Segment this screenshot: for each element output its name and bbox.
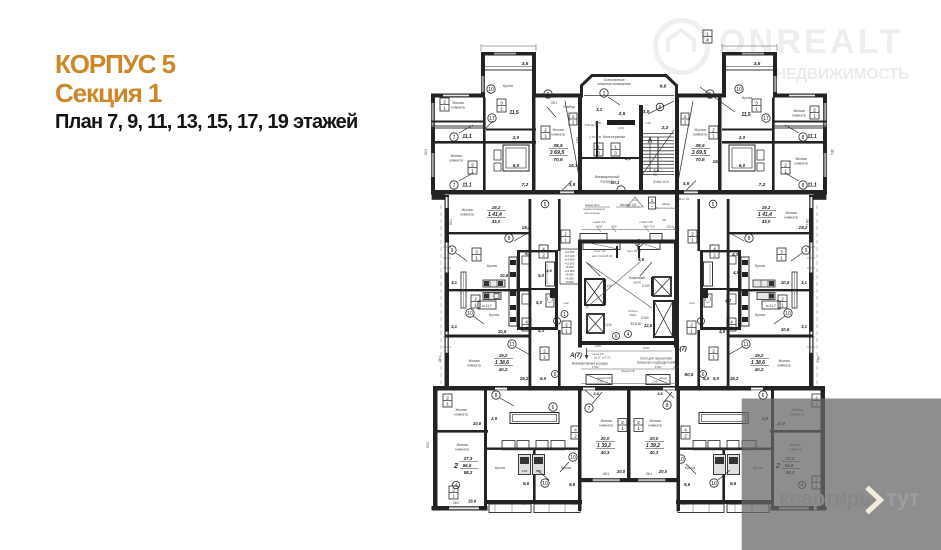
svg-text:Е15,30: Е15,30 bbox=[631, 322, 642, 326]
svg-text:4: 4 bbox=[730, 319, 733, 324]
svg-text:комната: комната bbox=[599, 424, 613, 428]
svg-text:9,6: 9,6 bbox=[660, 84, 667, 90]
svg-text:люк: люк bbox=[689, 301, 695, 305]
svg-text:600 710: 600 710 bbox=[644, 225, 655, 229]
svg-text:5,0: 5,0 bbox=[540, 376, 547, 381]
svg-text:Жилая: Жилая bbox=[600, 419, 611, 423]
svg-text:1: 1 bbox=[471, 168, 474, 173]
svg-text:10: 10 bbox=[785, 311, 791, 317]
svg-text:5=8а·10,6: 5=8а·10,6 bbox=[653, 180, 668, 184]
svg-text:мест. ОК: мест. ОК bbox=[594, 249, 606, 253]
svg-text:3: 3 bbox=[780, 249, 783, 254]
svg-text:комната: комната bbox=[454, 413, 468, 417]
svg-text:А(7): А(7) bbox=[569, 353, 582, 359]
svg-text:7,2: 7,2 bbox=[522, 182, 529, 188]
svg-text:2: 2 bbox=[784, 162, 787, 167]
svg-text:=17.000: =17.000 bbox=[565, 254, 575, 258]
svg-text:3,9: 3,9 bbox=[569, 182, 576, 187]
svg-text:1 39,2: 1 39,2 bbox=[646, 443, 660, 449]
svg-text:40,3: 40,3 bbox=[600, 450, 610, 455]
svg-text:2: 2 bbox=[564, 231, 567, 236]
svg-text:2: 2 bbox=[542, 252, 545, 257]
svg-text:Вентиляционный: Вентиляционный bbox=[656, 206, 679, 210]
svg-text:10: 10 bbox=[736, 87, 742, 93]
svg-text:1: 1 bbox=[475, 255, 478, 260]
svg-text:19,2: 19,2 bbox=[492, 205, 501, 210]
svg-text:7: 7 bbox=[588, 406, 591, 412]
svg-text:4: 4 bbox=[455, 483, 458, 489]
svg-text:1 38,6: 1 38,6 bbox=[751, 360, 765, 366]
svg-text:1,00: 1,00 bbox=[645, 121, 651, 125]
svg-text:6,0: 6,0 bbox=[625, 156, 632, 161]
svg-text:38,5: 38,5 bbox=[695, 143, 705, 149]
svg-text:3,1: 3,1 bbox=[451, 324, 457, 329]
svg-text:2: 2 bbox=[453, 463, 458, 470]
svg-text:мест СА Е15,30: мест СА Е15,30 bbox=[592, 254, 613, 258]
svg-text:6: 6 bbox=[638, 241, 641, 247]
svg-text:675: 675 bbox=[673, 365, 678, 369]
svg-text:1 38,6: 1 38,6 bbox=[495, 360, 509, 366]
svg-text:12,5: 12,5 bbox=[644, 323, 653, 328]
svg-text:6,0: 6,0 bbox=[739, 163, 746, 168]
svg-text:17: 17 bbox=[489, 116, 495, 122]
svg-text:2: 2 bbox=[565, 322, 568, 327]
svg-text:1: 1 bbox=[614, 144, 617, 149]
svg-text:11,1: 11,1 bbox=[807, 183, 817, 189]
svg-text:3: 3 bbox=[597, 150, 600, 155]
svg-text:70,6: 70,6 bbox=[695, 157, 705, 163]
svg-text:Жилая: Жилая bbox=[452, 101, 463, 105]
svg-text:2: 2 bbox=[813, 107, 816, 112]
svg-text:Жилая: Жилая bbox=[694, 128, 705, 132]
svg-text:комната: комната bbox=[455, 448, 469, 452]
svg-text:комната: комната bbox=[449, 159, 463, 163]
svg-text:3200: 3200 bbox=[643, 346, 650, 350]
svg-text:3 69,5: 3 69,5 bbox=[692, 150, 707, 156]
svg-text:10: 10 bbox=[542, 481, 548, 487]
svg-text:17: 17 bbox=[763, 116, 769, 122]
svg-text:3: 3 bbox=[475, 249, 478, 254]
svg-text:2: 2 bbox=[544, 127, 547, 132]
svg-text:Жилая: Жилая bbox=[793, 109, 804, 113]
svg-text:3: 3 bbox=[614, 150, 617, 155]
svg-text:комната: комната bbox=[467, 364, 481, 368]
svg-text:9,6: 9,6 bbox=[684, 482, 691, 487]
svg-text:10: 10 bbox=[467, 311, 473, 317]
svg-text:8: 8 bbox=[508, 236, 511, 242]
svg-text:58,2: 58,2 bbox=[464, 470, 473, 475]
svg-text:ОК1: ОК1 bbox=[830, 149, 834, 155]
svg-text:2: 2 bbox=[446, 395, 449, 400]
svg-text:38,5: 38,5 bbox=[553, 143, 563, 149]
svg-text:комната: комната bbox=[792, 114, 806, 118]
svg-text:1: 1 bbox=[597, 144, 600, 149]
svg-text:8: 8 bbox=[495, 393, 498, 399]
svg-text:4: 4 bbox=[574, 427, 577, 432]
svg-text:3,5: 3,5 bbox=[681, 501, 687, 506]
svg-text:10: 10 bbox=[488, 87, 494, 93]
svg-text:при пожаре: при пожаре bbox=[584, 211, 600, 215]
svg-text:70,6: 70,6 bbox=[553, 157, 563, 163]
svg-text:8: 8 bbox=[556, 319, 559, 325]
svg-text:ОК1: ОК1 bbox=[603, 472, 610, 476]
svg-text:1: 1 bbox=[563, 312, 566, 318]
svg-text:2: 2 bbox=[690, 322, 693, 327]
svg-text:4: 4 bbox=[684, 427, 687, 432]
svg-text:11,5: 11,5 bbox=[509, 110, 519, 116]
svg-text:2: 2 bbox=[730, 325, 733, 330]
svg-text:1: 1 bbox=[500, 106, 503, 111]
svg-text:–: – bbox=[651, 203, 654, 208]
svg-text:2: 2 bbox=[525, 325, 528, 330]
svg-text:4: 4 bbox=[542, 246, 545, 251]
svg-text:2: 2 bbox=[543, 348, 546, 353]
svg-text:Внеквартирный коридор: Внеквартирный коридор bbox=[572, 362, 608, 366]
svg-text:комната: комната bbox=[451, 106, 465, 110]
svg-text:11: 11 bbox=[743, 342, 748, 348]
svg-text:6,0: 6,0 bbox=[513, 163, 520, 168]
svg-text:3: 3 bbox=[755, 100, 758, 105]
svg-text:3: 3 bbox=[500, 100, 503, 105]
svg-text:ОК2: ОК2 bbox=[453, 501, 460, 505]
svg-text:Жилая: Жилая bbox=[455, 408, 466, 412]
svg-text:10: 10 bbox=[711, 481, 717, 487]
svg-text:1: 1 bbox=[443, 105, 446, 110]
svg-text:7,2: 7,2 bbox=[759, 182, 766, 188]
svg-text:2,5: 2,5 bbox=[618, 111, 626, 117]
svg-text:спавб ОБ: спавб ОБ bbox=[639, 220, 652, 224]
svg-text:4,0: 4,0 bbox=[724, 298, 731, 303]
svg-text:1: 1 bbox=[781, 302, 784, 307]
svg-text:56,6: 56,6 bbox=[463, 463, 472, 468]
svg-text:5: 5 bbox=[712, 202, 715, 208]
svg-text:4: 4 bbox=[627, 332, 630, 338]
svg-text:Шкафы ОБ: Шкафы ОБ bbox=[620, 203, 637, 207]
svg-text:6: 6 bbox=[702, 372, 705, 378]
svg-text:2: 2 bbox=[781, 296, 784, 301]
svg-text:5: 5 bbox=[544, 202, 547, 208]
svg-text:6: 6 bbox=[552, 405, 555, 411]
svg-text:7: 7 bbox=[453, 135, 456, 141]
svg-text:4: 4 bbox=[713, 246, 716, 251]
svg-text:1: 1 bbox=[572, 114, 575, 119]
svg-text:19,2: 19,2 bbox=[520, 376, 529, 381]
svg-text:комната: комната bbox=[551, 133, 565, 137]
svg-text:19,2: 19,2 bbox=[799, 225, 808, 230]
svg-text:4,3: 4,3 bbox=[731, 252, 738, 257]
svg-text:2: 2 bbox=[713, 252, 716, 257]
svg-text:1: 1 bbox=[712, 354, 715, 359]
svg-text:8: 8 bbox=[700, 319, 703, 325]
svg-text:10,6: 10,6 bbox=[781, 327, 790, 332]
svg-text:600: 600 bbox=[611, 225, 616, 229]
svg-text:6: 6 bbox=[615, 334, 618, 340]
svg-text:Жилая: Жилая bbox=[456, 443, 467, 447]
svg-text:4: 4 bbox=[525, 319, 528, 324]
svg-text:2: 2 bbox=[712, 127, 715, 132]
svg-text:(т-Па)СВ: (т-Па)СВ bbox=[589, 135, 601, 139]
svg-text:43,0: 43,0 bbox=[761, 219, 771, 224]
svg-text:9600: 9600 bbox=[595, 121, 602, 125]
svg-text:=3.000: =3.000 bbox=[565, 276, 574, 280]
svg-text:8: 8 bbox=[666, 403, 669, 409]
svg-text:6: 6 bbox=[762, 393, 765, 399]
svg-text:10: 10 bbox=[678, 457, 684, 463]
svg-text:9,6: 9,6 bbox=[569, 482, 576, 487]
svg-text:6: 6 bbox=[659, 105, 662, 111]
svg-text:тут: тут bbox=[886, 486, 920, 511]
svg-text:=6.000: =6.000 bbox=[565, 273, 574, 277]
svg-text:1: 1 bbox=[780, 255, 783, 260]
svg-text:комната: комната bbox=[784, 216, 798, 220]
svg-text:см.1Г а.П.ГЗ: см.1Г а.П.ГЗ bbox=[594, 356, 611, 360]
svg-text:4,9: 4,9 bbox=[732, 270, 739, 275]
svg-text:16,1: 16,1 bbox=[569, 163, 578, 168]
svg-text:люк: люк bbox=[563, 301, 569, 305]
svg-text:1200: 1200 bbox=[618, 126, 625, 130]
svg-text:спавб 2,5: спавб 2,5 bbox=[592, 220, 605, 224]
svg-text:43,0: 43,0 bbox=[491, 219, 501, 224]
svg-text:11: 11 bbox=[509, 342, 514, 348]
svg-text:6: 6 bbox=[554, 372, 557, 378]
svg-text:3,9: 3,9 bbox=[683, 181, 690, 186]
svg-text:Кухня: Кухня bbox=[503, 84, 513, 88]
svg-text:=0.000: =0.000 bbox=[565, 280, 574, 284]
svg-text:9,6: 9,6 bbox=[730, 481, 737, 486]
svg-text:1: 1 bbox=[706, 31, 709, 36]
svg-text:152,5: 152,5 bbox=[666, 225, 674, 229]
svg-text:ПВ: ПВ bbox=[662, 218, 666, 222]
svg-text:1 39,2: 1 39,2 bbox=[597, 443, 611, 449]
svg-text:м 11,7: м 11,7 bbox=[482, 304, 492, 308]
svg-text:Б(7): Б(7) bbox=[675, 347, 687, 353]
svg-text:3,6: 3,6 bbox=[657, 391, 663, 396]
svg-text:холл: холл bbox=[633, 280, 640, 284]
svg-text:+14.000: +14.000 bbox=[565, 258, 575, 262]
svg-text:1700: 1700 bbox=[592, 365, 599, 369]
svg-text:ОК1: ОК1 bbox=[551, 101, 558, 105]
svg-text:Кухня: Кухня bbox=[755, 313, 765, 317]
svg-text:3,1: 3,1 bbox=[730, 501, 736, 506]
svg-text:2: 2 bbox=[712, 348, 715, 353]
svg-text:2,2: 2,2 bbox=[661, 125, 669, 131]
svg-text:нежилые помещения: нежилые помещения bbox=[597, 82, 630, 86]
svg-text:2430: 2430 bbox=[595, 344, 602, 348]
svg-text:Консьержная: Консьержная bbox=[603, 135, 625, 139]
svg-text:1: 1 bbox=[651, 198, 654, 203]
svg-text:1: 1 bbox=[452, 493, 455, 498]
svg-text:7: 7 bbox=[453, 183, 456, 189]
svg-text:1700: 1700 bbox=[597, 380, 604, 384]
svg-text:3,5: 3,5 bbox=[522, 61, 529, 67]
svg-text:11,5: 11,5 bbox=[741, 112, 751, 118]
svg-text:9: 9 bbox=[805, 248, 808, 254]
svg-text:3,6: 3,6 bbox=[593, 391, 599, 396]
svg-text:Шкаф: Шкаф bbox=[659, 376, 668, 380]
svg-text:ОК1: ОК1 bbox=[438, 356, 442, 362]
svg-text:квартиры: квартиры bbox=[779, 487, 876, 511]
svg-text:м 11,7: м 11,7 bbox=[766, 304, 776, 308]
svg-text:3,1: 3,1 bbox=[451, 280, 457, 285]
svg-text:1: 1 bbox=[637, 426, 640, 431]
svg-text:10,1: 10,1 bbox=[611, 180, 620, 185]
svg-text:19,2: 19,2 bbox=[499, 353, 508, 358]
svg-text:комната: комната bbox=[648, 424, 662, 428]
svg-text:=11.000: =11.000 bbox=[565, 261, 575, 265]
svg-text:40,2: 40,2 bbox=[754, 367, 764, 372]
svg-text:8: 8 bbox=[802, 135, 805, 141]
svg-text:80,5: 80,5 bbox=[685, 372, 694, 377]
svg-text:1: 1 bbox=[564, 237, 567, 242]
svg-text:2: 2 bbox=[637, 420, 640, 425]
svg-text:20,0: 20,0 bbox=[616, 469, 626, 474]
svg-text:Е130: Е130 bbox=[642, 284, 650, 288]
svg-text:11,1: 11,1 bbox=[462, 183, 472, 189]
svg-text:20,0: 20,0 bbox=[658, 469, 668, 474]
svg-text:1: 1 bbox=[813, 113, 816, 118]
svg-text:9: 9 bbox=[451, 248, 454, 254]
svg-text:+14.000: +14.000 bbox=[565, 269, 575, 273]
svg-text:ПК: ПК bbox=[653, 173, 657, 177]
svg-text:Тамбур: Тамбур bbox=[563, 105, 575, 109]
svg-text:3,1: 3,1 bbox=[596, 107, 603, 112]
svg-text:10,6: 10,6 bbox=[781, 280, 790, 285]
svg-text:ОК1: ОК1 bbox=[424, 149, 428, 155]
svg-text:ОК1: ОК1 bbox=[646, 472, 653, 476]
svg-text:Е160: Е160 bbox=[641, 316, 649, 320]
svg-text:1: 1 bbox=[603, 91, 606, 97]
svg-text:1 41,4: 1 41,4 bbox=[488, 212, 502, 218]
svg-text:3 69,5: 3 69,5 bbox=[550, 150, 565, 156]
svg-text:2: 2 bbox=[684, 433, 687, 438]
svg-text:2: 2 bbox=[621, 420, 624, 425]
svg-text:Шкаф ОБ: Шкаф ОБ bbox=[621, 369, 634, 373]
svg-text:Мест 96: Мест 96 bbox=[679, 197, 690, 201]
svg-text:9,6: 9,6 bbox=[523, 481, 530, 486]
svg-text:2430: 2430 bbox=[596, 225, 603, 229]
svg-text:5,0: 5,0 bbox=[538, 273, 544, 278]
svg-text:10,6: 10,6 bbox=[473, 421, 482, 426]
svg-text:4: 4 bbox=[706, 37, 709, 42]
svg-text:3,5: 3,5 bbox=[571, 501, 577, 506]
svg-text:20,0: 20,0 bbox=[600, 436, 610, 441]
svg-text:Жилая: Жилая bbox=[552, 128, 563, 132]
svg-text:ОК1: ОК1 bbox=[816, 356, 820, 362]
svg-text:Кухня: Кухня bbox=[742, 96, 752, 100]
svg-text:1: 1 bbox=[684, 114, 687, 119]
svg-text:6,7: 6,7 bbox=[525, 251, 531, 256]
svg-text:Жилая: Жилая bbox=[778, 359, 789, 363]
svg-text:1: 1 bbox=[572, 119, 575, 124]
svg-text:1: 1 bbox=[690, 328, 693, 333]
svg-text:10: 10 bbox=[570, 455, 576, 461]
svg-text:4ХВ: 4ХВ bbox=[522, 469, 528, 473]
svg-text:1: 1 bbox=[543, 354, 546, 359]
svg-text:27,3: 27,3 bbox=[463, 456, 473, 461]
svg-text:11,1: 11,1 bbox=[462, 134, 472, 140]
svg-text:2,6: 2,6 bbox=[652, 168, 659, 173]
svg-text:8: 8 bbox=[748, 236, 751, 242]
svg-text:Е130: Е130 bbox=[604, 323, 612, 327]
svg-text:40,3: 40,3 bbox=[649, 450, 659, 455]
svg-text:3,1: 3,1 bbox=[801, 280, 807, 285]
svg-text:ОК2: ОК2 bbox=[426, 442, 430, 448]
svg-text:1 41,4: 1 41,4 bbox=[758, 212, 772, 218]
svg-text:5: 5 bbox=[547, 92, 550, 98]
svg-text:19,2: 19,2 bbox=[522, 225, 531, 230]
svg-text:1300: 1300 bbox=[652, 380, 659, 384]
svg-text:Кухня: Кухня bbox=[755, 264, 765, 268]
svg-text:40,2: 40,2 bbox=[498, 367, 508, 372]
svg-text:Жилая: Жилая bbox=[785, 211, 796, 215]
svg-text:=21.000: =21.000 bbox=[565, 250, 575, 254]
svg-text:19,2: 19,2 bbox=[755, 353, 764, 358]
svg-text:10,6: 10,6 bbox=[500, 273, 509, 278]
svg-text:Жилая: Жилая bbox=[461, 208, 472, 212]
svg-text:1: 1 bbox=[446, 401, 449, 406]
svg-text:3,5: 3,5 bbox=[754, 61, 761, 67]
svg-text:5,0: 5,0 bbox=[713, 376, 720, 381]
svg-text:Кухня: Кухня bbox=[489, 313, 499, 317]
svg-text:1: 1 bbox=[565, 328, 568, 333]
svg-text:Жилая: Жилая bbox=[468, 359, 479, 363]
svg-text:2,9: 2,9 bbox=[490, 416, 497, 421]
svg-text:1: 1 bbox=[474, 302, 477, 307]
svg-text:ОК1: ОК1 bbox=[449, 219, 453, 225]
svg-text:2: 2 bbox=[574, 433, 577, 438]
svg-text:10,6: 10,6 bbox=[498, 329, 507, 334]
svg-text:3,1: 3,1 bbox=[522, 501, 528, 506]
svg-text:Кухня: Кухня bbox=[495, 466, 505, 470]
svg-text:Жилая: Жилая bbox=[450, 154, 461, 158]
svg-text:2110: 2110 bbox=[575, 136, 579, 143]
svg-text:630кг: 630кг bbox=[629, 313, 636, 317]
svg-text:3,1: 3,1 bbox=[801, 324, 807, 329]
svg-text:2: 2 bbox=[691, 231, 694, 236]
svg-text:2: 2 bbox=[474, 296, 477, 301]
svg-text:Жилая: Жилая bbox=[649, 419, 660, 423]
svg-text:1: 1 bbox=[621, 426, 624, 431]
svg-text:1: 1 bbox=[544, 133, 547, 138]
svg-text:4,3: 4,3 bbox=[537, 328, 544, 333]
svg-text:2: 2 bbox=[443, 99, 446, 104]
svg-text:Кухня: Кухня bbox=[487, 264, 497, 268]
svg-text:=8.000: =8.000 bbox=[565, 265, 574, 269]
svg-text:4,9: 4,9 bbox=[545, 268, 552, 273]
svg-text:1: 1 bbox=[712, 133, 715, 138]
svg-text:4,8: 4,8 bbox=[718, 329, 725, 334]
svg-text:11,1: 11,1 bbox=[807, 134, 817, 140]
svg-text:комната: комната bbox=[693, 133, 707, 137]
svg-text:комната: комната bbox=[460, 213, 474, 217]
svg-text:8: 8 bbox=[802, 183, 805, 189]
svg-text:1: 1 bbox=[784, 168, 787, 173]
svg-text:комната: комната bbox=[777, 364, 791, 368]
svg-text:2,0: 2,0 bbox=[738, 135, 746, 140]
svg-text:1,00: 1,00 bbox=[632, 198, 638, 202]
svg-text:комната: комната bbox=[794, 162, 808, 166]
svg-text:НЕДВИЖИМОСТЬ: НЕДВИЖИМОСТЬ bbox=[775, 66, 909, 83]
svg-text:1300: 1300 bbox=[655, 365, 662, 369]
svg-text:16,9: 16,9 bbox=[468, 499, 477, 504]
svg-text:Внеквартирный: Внеквартирный bbox=[595, 175, 620, 179]
svg-text:1: 1 bbox=[691, 237, 694, 242]
svg-text:19,2: 19,2 bbox=[762, 205, 771, 210]
svg-text:5,0: 5,0 bbox=[536, 300, 542, 305]
svg-text:Жилая: Жилая bbox=[795, 157, 806, 161]
svg-text:19,2: 19,2 bbox=[730, 376, 739, 381]
svg-text:1: 1 bbox=[755, 106, 758, 111]
